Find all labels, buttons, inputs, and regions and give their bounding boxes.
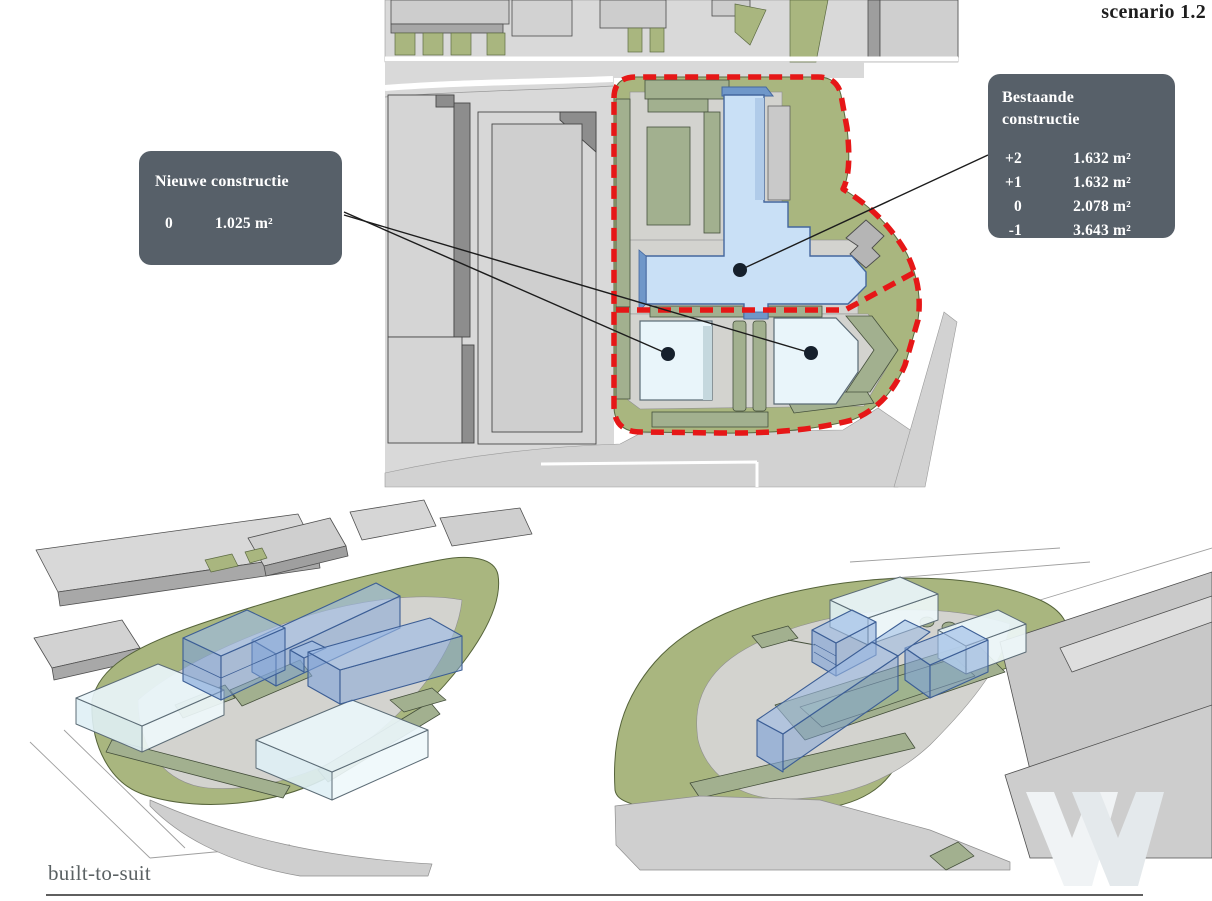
area-value: 1.025 m² bbox=[215, 212, 273, 236]
callout-existing-title: Bestaande constructie bbox=[1002, 87, 1161, 131]
level-label: +2 bbox=[1002, 147, 1022, 171]
level-label: -1 bbox=[1002, 219, 1022, 243]
area-value: 3.643 m² bbox=[1022, 219, 1161, 243]
callout-row: +2 1.632 m² bbox=[1002, 147, 1161, 171]
callout-existing-rows: +2 1.632 m² +1 1.632 m² 0 2.078 m² -1 3.… bbox=[1002, 147, 1161, 243]
callout-row: -1 3.643 m² bbox=[1002, 219, 1161, 243]
site-plan bbox=[385, 0, 958, 487]
area-value: 1.632 m² bbox=[1022, 147, 1161, 171]
footer-divider bbox=[46, 894, 1143, 896]
scenario-title: scenario 1.2 bbox=[1101, 1, 1206, 24]
title-line-2: constructie bbox=[1002, 109, 1161, 131]
level-label: 0 bbox=[155, 212, 173, 236]
w-watermark-logo bbox=[1026, 792, 1164, 886]
level-label: 0 bbox=[1002, 195, 1022, 219]
callout-new-construction: Nieuwe constructie 0 1.025 m² bbox=[139, 151, 342, 265]
area-value: 2.078 m² bbox=[1022, 195, 1161, 219]
callout-row: +1 1.632 m² bbox=[1002, 171, 1161, 195]
callout-new-title: Nieuwe constructie bbox=[155, 171, 328, 193]
left-view-road bbox=[150, 800, 432, 876]
callout-new-rows: 0 1.025 m² bbox=[155, 212, 328, 236]
aerial-view-left bbox=[30, 500, 532, 876]
footer-variant-label: built-to-suit bbox=[48, 861, 151, 886]
callout-row: 0 1.025 m² bbox=[155, 212, 328, 236]
area-value: 1.632 m² bbox=[1022, 171, 1161, 195]
aerial-view-right bbox=[614, 548, 1212, 886]
callout-existing-construction: Bestaande constructie +2 1.632 m² +1 1.6… bbox=[988, 74, 1175, 238]
new-building-shadow bbox=[703, 326, 712, 400]
level-label: +1 bbox=[1002, 171, 1022, 195]
callout-row: 0 2.078 m² bbox=[1002, 195, 1161, 219]
title-line-1: Bestaande bbox=[1002, 87, 1161, 109]
